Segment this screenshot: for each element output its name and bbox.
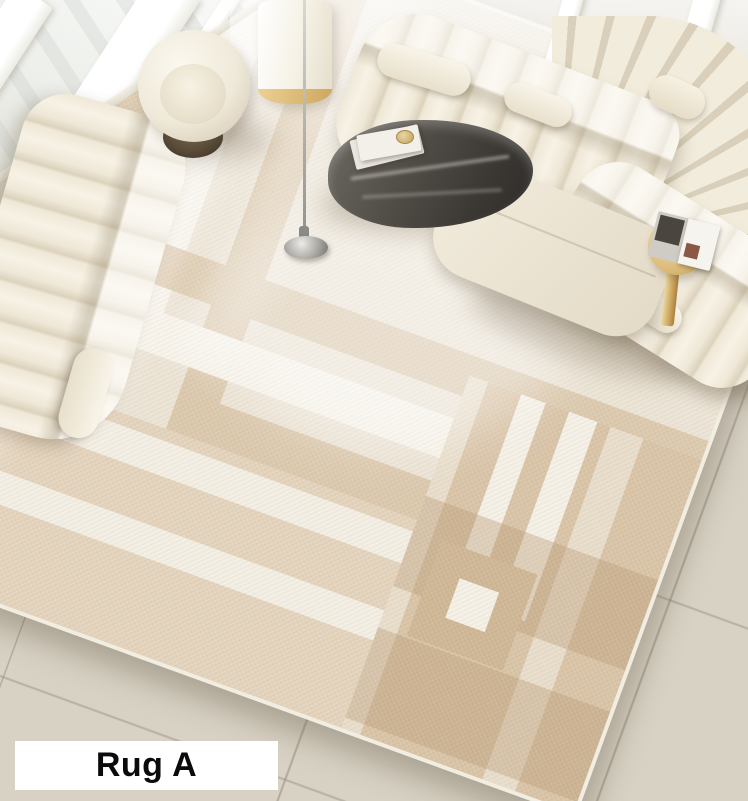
armchair-seat-cushion — [160, 64, 226, 124]
sofa-bolster — [373, 39, 475, 100]
floor-lamp-pole — [303, 0, 306, 244]
gold-dish — [396, 130, 414, 144]
marble-vein — [362, 188, 502, 198]
caption-text: Rug A — [96, 746, 197, 785]
drum-planter — [258, 0, 332, 104]
rug-square-motif-center — [445, 578, 499, 632]
sofa-bolster — [500, 78, 576, 131]
caption-bar: Rug A — [15, 741, 278, 790]
floor-lamp-base — [284, 236, 328, 259]
scene: Rug A — [0, 0, 748, 801]
